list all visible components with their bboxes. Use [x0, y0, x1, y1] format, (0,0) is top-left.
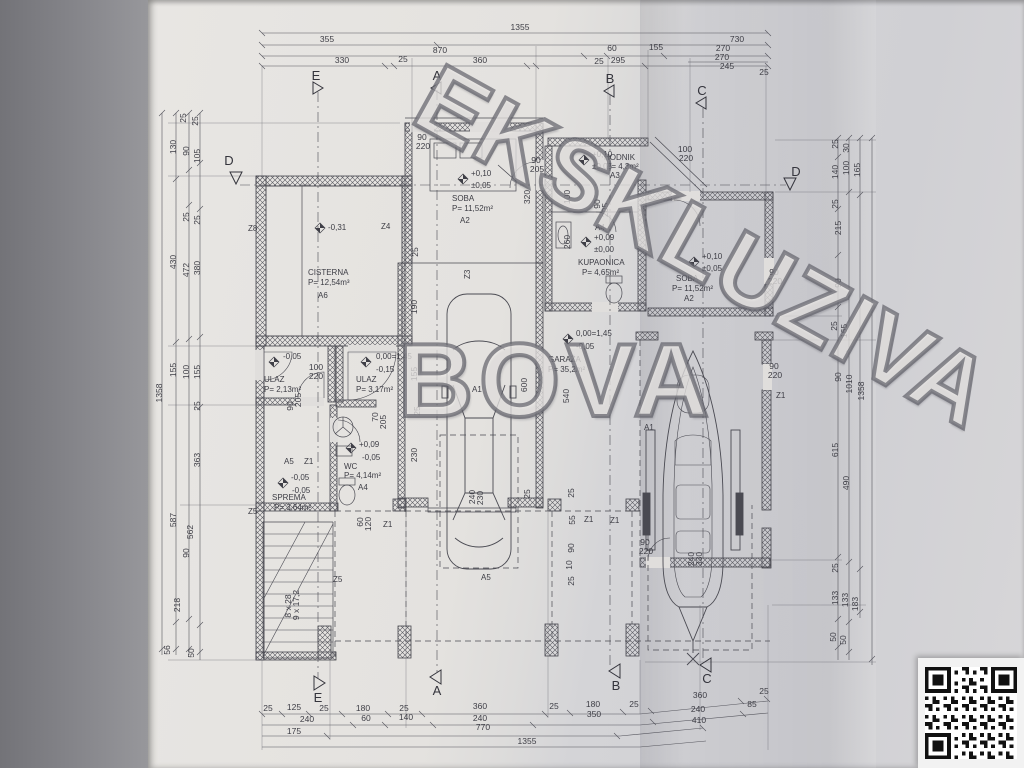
- dim-label: 133: [840, 593, 850, 607]
- dim-label: 25: [181, 212, 191, 222]
- dim-label: 205: [293, 393, 303, 407]
- dim-label: 1358: [154, 383, 164, 402]
- dim-label: 105: [192, 149, 202, 163]
- dim-label: 25: [178, 113, 188, 123]
- dim-label: 25: [566, 488, 576, 498]
- dim-label: 133: [830, 591, 840, 605]
- dim-label: 562: [185, 525, 195, 539]
- dim-label: 90: [566, 543, 576, 553]
- dim-label: 183: [850, 597, 860, 611]
- dim-label: 25: [830, 563, 840, 573]
- dim-label: 220: [768, 370, 782, 380]
- dim-label: 472: [181, 263, 191, 277]
- zone-label: Z1: [304, 457, 314, 466]
- room-area: P= 11,52m²: [452, 204, 493, 213]
- dim-label: 85: [747, 699, 757, 709]
- dim-label: 50: [186, 648, 196, 658]
- dim-label: 350: [587, 709, 601, 719]
- dim-labels-top: 1355 355 730 870 60 155 270 330 25 360 2…: [320, 22, 769, 77]
- dim-label: 165: [852, 163, 862, 177]
- marker-e-top: E: [312, 68, 321, 83]
- dim-label: 25: [319, 703, 329, 713]
- room-name: SOBA: [452, 194, 475, 203]
- room-name: ULAZ: [356, 375, 377, 384]
- level-value: -0,31: [328, 223, 347, 232]
- dim-label: 125: [287, 702, 301, 712]
- dim-label: 50: [838, 635, 848, 645]
- dim-label: 180: [586, 699, 600, 709]
- dim-label: 60: [607, 43, 617, 53]
- stair-note: 9 x 17,2: [291, 590, 301, 621]
- zone-label: Z5: [333, 575, 343, 584]
- room-code: A6: [318, 291, 328, 300]
- dim-label: 25: [192, 215, 202, 225]
- dim-label: 90: [181, 146, 191, 156]
- dim-label: 205: [378, 415, 388, 429]
- zone-label: Z1: [610, 516, 620, 525]
- dim-label: 215: [833, 221, 843, 235]
- dim-label: 430: [168, 255, 178, 269]
- dim-label: 25: [410, 247, 420, 257]
- dim-label: 25: [190, 116, 200, 126]
- room-area: P= 3,64m²: [274, 503, 311, 512]
- dim-label: 155: [192, 365, 202, 379]
- dim-label: 770: [476, 722, 490, 732]
- marker-c-bottom: C: [702, 671, 711, 686]
- floor-plan-photo: E A B C E A B C D D 1355 355 730 870: [0, 0, 1024, 768]
- dim-label: 180: [356, 703, 370, 713]
- room-name: ULAZ: [264, 375, 285, 384]
- dim-label: 218: [172, 598, 182, 612]
- dim-label: 410: [692, 715, 706, 725]
- qr-code: [918, 658, 1024, 768]
- zone-label: Z4: [381, 222, 391, 231]
- dim-label: 220: [679, 153, 693, 163]
- dim-label: 730: [730, 34, 744, 44]
- dim-label: 25: [263, 703, 273, 713]
- dim-label: 360: [693, 690, 707, 700]
- dim-label: 295: [611, 55, 625, 65]
- room-code: A2: [460, 216, 470, 225]
- dim-label: 230: [475, 491, 485, 505]
- dim-label: 1355: [511, 22, 530, 32]
- dim-label: 220: [309, 371, 323, 381]
- dim-labels-bottom: 25 125 25 180 25 360 25 180 25 360 25 85…: [263, 686, 769, 746]
- zone-label: Z1: [584, 515, 594, 524]
- dim-label: 50: [828, 632, 838, 642]
- room-name: CISTERNA: [308, 268, 349, 277]
- marker-d-right: D: [791, 164, 800, 179]
- dim-label: 25: [549, 701, 559, 711]
- dim-label: 363: [192, 453, 202, 467]
- zone-label: Z8: [248, 224, 258, 233]
- room-code: A4: [358, 483, 368, 492]
- marker-b-top: B: [606, 71, 615, 86]
- dim-label: 140: [399, 712, 413, 722]
- dim-label: 25: [629, 699, 639, 709]
- level-value: +0,09: [359, 440, 380, 449]
- level-value: -0,05: [362, 453, 381, 462]
- dim-label: 25: [192, 401, 202, 411]
- dim-label: 490: [841, 476, 851, 490]
- dim-label: 360: [473, 701, 487, 711]
- dim-labels-left: 25 25 130 90 105 25 25 430 472 380 155 1…: [154, 113, 202, 658]
- dim-label: 240: [300, 714, 314, 724]
- room-area: P= 12,54m³: [308, 278, 350, 287]
- dim-label: 615: [830, 443, 840, 457]
- room-code: A5: [481, 573, 491, 582]
- dim-label: 355: [320, 34, 334, 44]
- dim-label: 55: [567, 515, 577, 525]
- dim-label: 25: [566, 576, 576, 586]
- dim-label: 90: [181, 548, 191, 558]
- room-area: P= 4,14m²: [344, 471, 381, 480]
- dim-label: 190: [409, 300, 419, 314]
- dim-label: 220: [639, 546, 653, 556]
- room-area: P= 4,65m²: [582, 268, 619, 277]
- marker-c-top: C: [697, 83, 706, 98]
- room-name: WC: [344, 462, 358, 471]
- level-value: -0,05: [291, 473, 310, 482]
- dim-label: 56: [162, 645, 172, 655]
- dim-label: 120: [363, 517, 373, 531]
- dim-label: 140: [830, 165, 840, 179]
- dim-label: 25: [398, 54, 408, 64]
- dim-label: 245: [720, 61, 734, 71]
- dim-label: 155: [168, 363, 178, 377]
- room-area: P= 3,17m²: [356, 385, 393, 394]
- dim-label: 155: [649, 42, 663, 52]
- zone-label: Z1: [383, 520, 393, 529]
- dim-label: 240: [691, 704, 705, 714]
- dim-label: 25: [759, 686, 769, 696]
- dim-label: 30: [841, 143, 851, 153]
- dim-label: 25: [830, 199, 840, 209]
- zone-label: Z3: [463, 269, 472, 279]
- dim-label: 587: [168, 513, 178, 527]
- marker-a-bottom: A: [433, 683, 442, 698]
- marker-b-bottom: B: [612, 678, 621, 693]
- dim-label: 100: [181, 365, 191, 379]
- dim-label: 380: [192, 261, 202, 275]
- dim-label: 25: [594, 56, 604, 66]
- dim-label: 25: [522, 489, 532, 499]
- zone-label: Z5: [248, 507, 258, 516]
- level-value: -0,15: [376, 365, 395, 374]
- dim-label: 175: [287, 726, 301, 736]
- dim-label: 10: [564, 560, 574, 570]
- dim-label: 60: [361, 713, 371, 723]
- dim-label: 25: [759, 67, 769, 77]
- dim-label: 100: [841, 161, 851, 175]
- zone-label: A5: [284, 457, 294, 466]
- dim-label: 230: [409, 448, 419, 462]
- watermark-bova: BOVA: [398, 322, 715, 441]
- dim-label: 330: [694, 552, 704, 566]
- dim-label: 25: [830, 139, 840, 149]
- zone-label: Z1: [776, 391, 786, 400]
- marker-d-left: D: [224, 153, 233, 168]
- dim-label: 330: [335, 55, 349, 65]
- level-value: -0,05: [292, 486, 311, 495]
- dim-label: 1355: [518, 736, 537, 746]
- room-area: P= 2,13m²: [264, 385, 301, 394]
- dim-label: 130: [168, 140, 178, 154]
- level-value: -0,05: [283, 352, 302, 361]
